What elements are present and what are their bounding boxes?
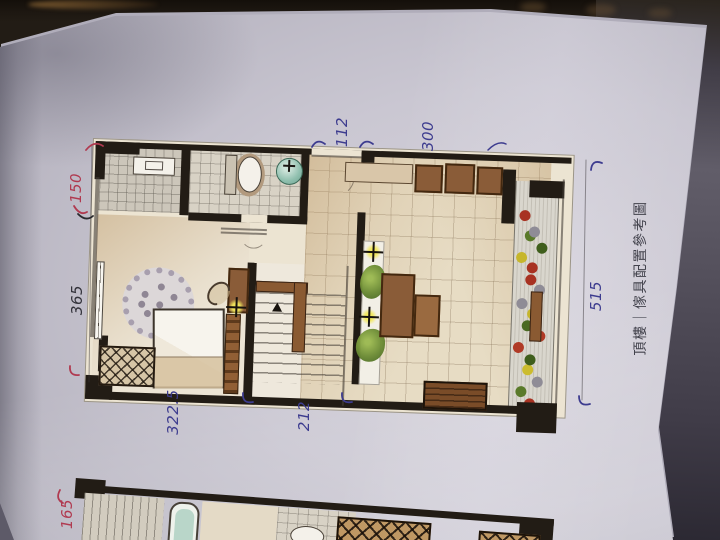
reflection-highlight: [28, 0, 158, 9]
room-floor: [198, 501, 278, 540]
dimension-515: 515: [588, 274, 604, 318]
floorplan-lower-floor: [71, 476, 575, 540]
bench: [98, 345, 155, 387]
stair-rail: [292, 282, 307, 352]
bed: [153, 308, 225, 388]
page-title: 頂樓｜傢具配置參考圖: [632, 198, 650, 358]
wall-terrace-balcony: [501, 169, 516, 223]
reflection-highlight: [586, 4, 616, 16]
dimension-322-5: 322.5: [165, 384, 181, 440]
wall-counter: [345, 162, 414, 184]
island-cabinet: [379, 273, 415, 338]
cabinet: [414, 164, 443, 193]
cabinet: [444, 163, 475, 194]
floorplan-top-floor: [84, 138, 575, 419]
sideboard: [423, 381, 488, 411]
tiled-shower: [81, 493, 165, 540]
toilet-cistern: [224, 155, 237, 195]
bathtub: [166, 501, 200, 540]
reflection-highlight: [648, 8, 672, 18]
dimension-150: 150: [68, 166, 84, 210]
ceiling-light-symbol: [365, 244, 382, 261]
stair-direction-arrow: [272, 297, 282, 311]
wall-corner-bottom-right: [516, 402, 557, 433]
cabinet: [476, 166, 503, 195]
island-cabinet-side: [413, 294, 440, 337]
reflection-highlight: [520, 2, 546, 12]
door-swing-arc: [240, 222, 267, 249]
wall-balcony-top: [529, 180, 565, 198]
dimension-300: 300: [420, 114, 436, 158]
dimension-212: 212: [296, 394, 312, 438]
dimension-112: 112: [334, 110, 350, 154]
balcony-bench: [529, 291, 543, 341]
paper-sheet: 150 365 165 322.5 212 112 300 515 頂樓｜傢具配…: [0, 0, 720, 540]
basin-faucet: [283, 165, 295, 167]
bed-headboard: [223, 314, 241, 394]
dimension-165: 165: [59, 492, 75, 536]
bathtub-basin: [173, 508, 195, 540]
wall-corner-top-left: [95, 141, 106, 179]
dimension-365: 365: [69, 278, 85, 322]
ceiling-light-symbol: [361, 308, 378, 325]
photo-of-floorplan-page: 150 365 165 322.5 212 112 300 515 頂樓｜傢具配…: [0, 0, 720, 540]
shower-drain: [145, 161, 163, 171]
ceiling-light-symbol: [228, 299, 245, 316]
lattice-shelves: [334, 516, 431, 540]
